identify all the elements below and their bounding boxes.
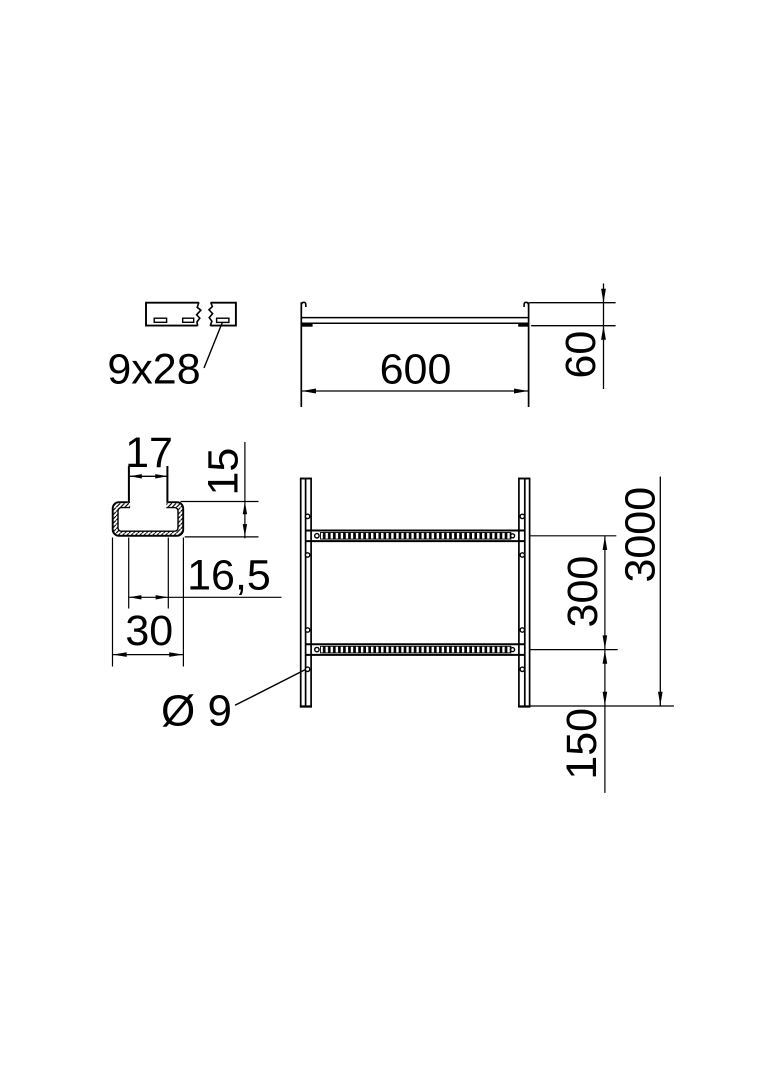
svg-text:Ø 9: Ø 9 bbox=[161, 686, 232, 735]
svg-text:300: 300 bbox=[559, 556, 607, 628]
svg-text:600: 600 bbox=[380, 345, 452, 393]
svg-text:30: 30 bbox=[125, 607, 173, 655]
svg-text:15: 15 bbox=[199, 448, 247, 496]
svg-text:17: 17 bbox=[125, 429, 173, 477]
svg-text:60: 60 bbox=[557, 331, 605, 379]
svg-text:3000: 3000 bbox=[617, 487, 665, 583]
svg-text:150: 150 bbox=[558, 708, 606, 780]
svg-text:9x28: 9x28 bbox=[107, 346, 200, 394]
svg-text:16,5: 16,5 bbox=[187, 551, 271, 599]
